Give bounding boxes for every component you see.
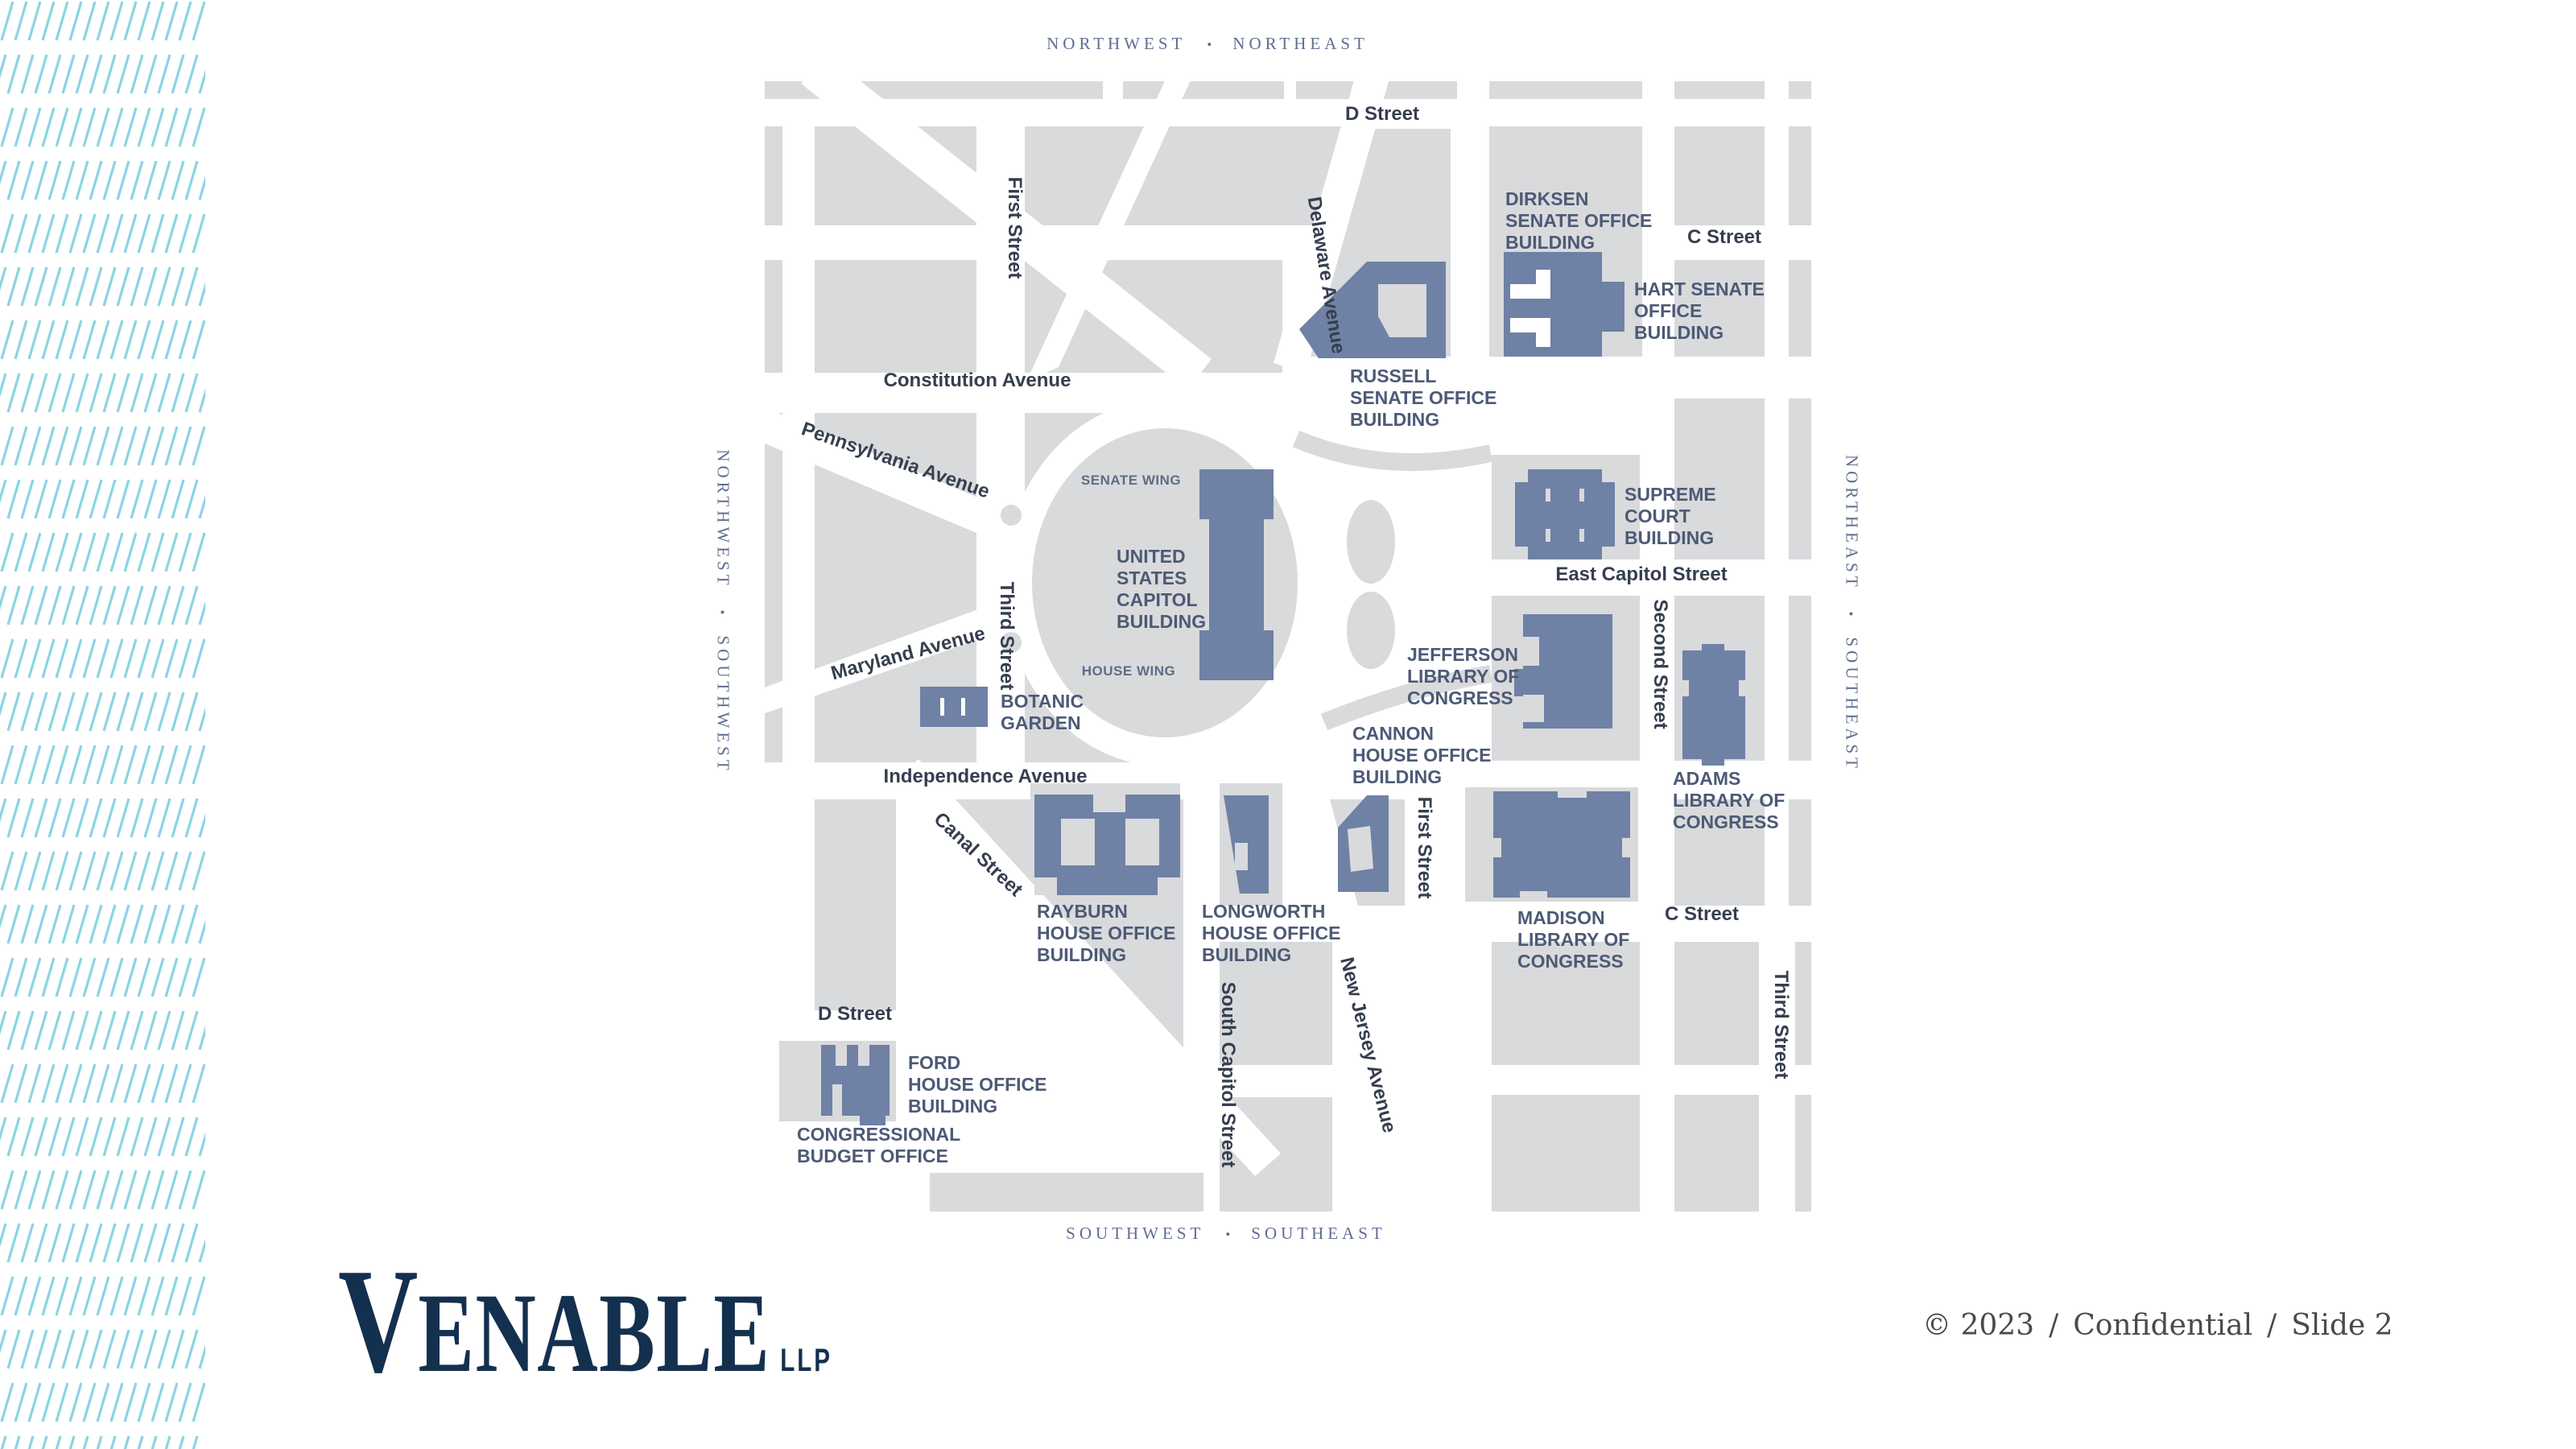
compass-top: NORTHWEST • NORTHEAST bbox=[1046, 34, 1368, 54]
ford-house-office-building-shape bbox=[821, 1045, 890, 1125]
venable-logo: VENABLE LLP bbox=[338, 1246, 832, 1396]
street-label-c-street-bottom: C Street bbox=[1665, 903, 1739, 925]
street-label-d-street-top: D Street bbox=[1345, 103, 1419, 125]
copyright-text: © 2023 bbox=[1922, 1309, 2034, 1342]
label-jefferson: JEFFERSON LIBRARY OF CONGRESS bbox=[1407, 644, 1525, 708]
street-label-south-capitol-street: South Capitol Street bbox=[1217, 982, 1239, 1168]
hatch-pattern-decor bbox=[0, 0, 205, 1449]
rayburn-house-office-building-shape bbox=[1034, 795, 1180, 895]
botanic-garden-building bbox=[920, 687, 988, 727]
capitol-hill-map: D Street C Street Constitution Avenue Pe… bbox=[765, 76, 1811, 1212]
street-label-third-street-sw: Third Street bbox=[996, 582, 1018, 691]
label-house-wing: HOUSE WING bbox=[1082, 663, 1175, 679]
jefferson-library-building bbox=[1514, 614, 1612, 729]
compass-bottom-west: SOUTHWEST bbox=[1066, 1224, 1204, 1244]
slide: { "compass": {"nw":"NORTHWEST","ne":"NOR… bbox=[0, 0, 2576, 1449]
supreme-court-building-shape bbox=[1515, 469, 1615, 559]
label-ford: FORD HOUSE OFFICE BUILDING bbox=[908, 1052, 1052, 1117]
label-adams: ADAMS LIBRARY OF CONGRESS bbox=[1673, 768, 1790, 832]
venable-logo-llp: LLP bbox=[780, 1343, 832, 1379]
madison-library-building bbox=[1493, 791, 1630, 898]
street-label-first-street-nw: First Street bbox=[1004, 177, 1026, 279]
compass-left: NORTHWEST • SOUTHWEST bbox=[713, 449, 733, 774]
slide-meta: © 2023 / Confidential / Slide 2 bbox=[1922, 1309, 2393, 1342]
compass-right: NORTHEAST • SOUTHEAST bbox=[1842, 455, 1862, 772]
street-label-second-street: Second Street bbox=[1649, 599, 1671, 729]
label-cannon: CANNON HOUSE OFFICE BUILDING bbox=[1352, 723, 1496, 787]
confidential-text: Confidential bbox=[2073, 1309, 2252, 1342]
separator: / bbox=[2049, 1309, 2058, 1342]
venable-logo-rest: ENABLE bbox=[418, 1277, 770, 1390]
compass-dot-icon: • bbox=[1843, 612, 1859, 617]
compass-bottom-east: SOUTHEAST bbox=[1251, 1224, 1386, 1244]
compass-left-north: NORTHWEST bbox=[713, 449, 733, 588]
street-label-east-capitol-street: East Capitol Street bbox=[1555, 563, 1727, 585]
label-congressional-budget-office: CONGRESSIONAL BUDGET OFFICE bbox=[797, 1124, 965, 1166]
street-label-c-street-top: C Street bbox=[1687, 226, 1761, 248]
label-senate-wing: SENATE WING bbox=[1081, 473, 1181, 488]
compass-top-east: NORTHEAST bbox=[1232, 34, 1368, 54]
compass-left-south: SOUTHWEST bbox=[713, 636, 733, 774]
separator: / bbox=[2267, 1309, 2277, 1342]
compass-dot-icon: • bbox=[1207, 37, 1212, 53]
compass-dot-icon: • bbox=[1225, 1227, 1230, 1243]
compass-right-north: NORTHEAST bbox=[1842, 455, 1862, 591]
adams-library-building bbox=[1682, 644, 1745, 766]
label-madison: MADISON LIBRARY OF CONGRESS bbox=[1517, 907, 1635, 972]
street-label-d-street-bottom: D Street bbox=[818, 1003, 892, 1025]
fountain-circle bbox=[1001, 505, 1022, 526]
street-label-first-street-se: First Street bbox=[1414, 797, 1435, 899]
united-states-capitol-building-shape bbox=[1199, 469, 1274, 680]
street-label-third-street-se: Third Street bbox=[1770, 971, 1792, 1080]
label-botanic-garden: BOTANIC GARDEN bbox=[1001, 691, 1088, 733]
compass-dot-icon: • bbox=[714, 610, 730, 615]
venable-logo-initial: V bbox=[338, 1246, 418, 1396]
compass-top-west: NORTHWEST bbox=[1046, 34, 1186, 54]
compass-right-south: SOUTHEAST bbox=[1842, 638, 1862, 773]
street-label-constitution-avenue: Constitution Avenue bbox=[884, 369, 1071, 391]
street-label-independence-avenue: Independence Avenue bbox=[884, 766, 1088, 787]
compass-bottom: SOUTHWEST • SOUTHEAST bbox=[1066, 1224, 1386, 1244]
label-russell: RUSSELL SENATE OFFICE BUILDING bbox=[1350, 365, 1502, 430]
slide-number: Slide 2 bbox=[2291, 1309, 2392, 1342]
